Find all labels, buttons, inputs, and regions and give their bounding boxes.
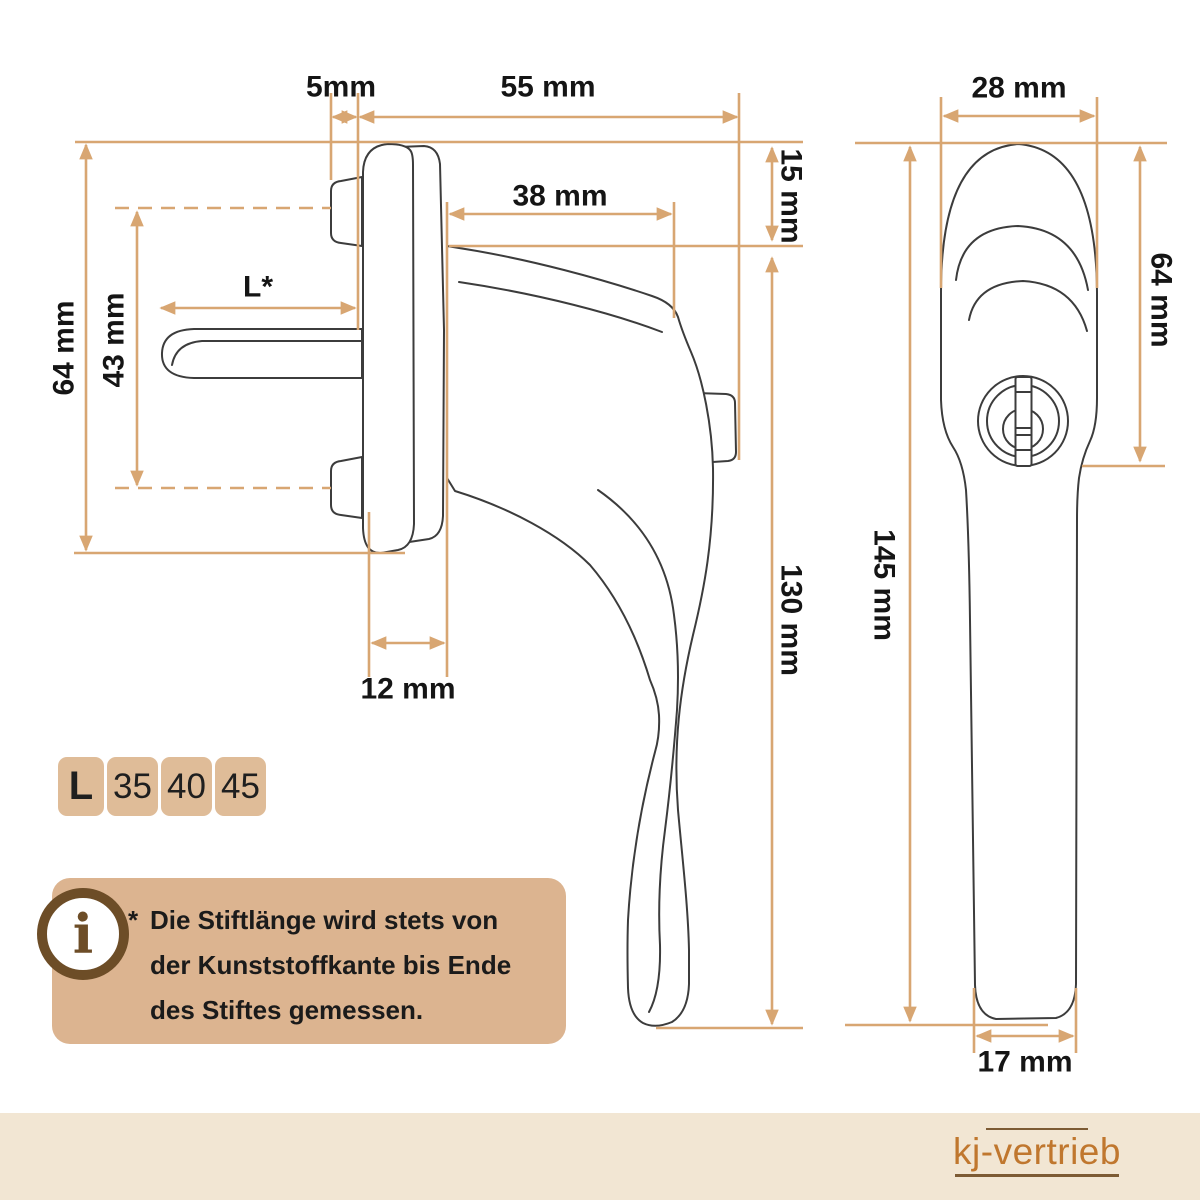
info-note-line: der Kunststoffkante bis Ende xyxy=(150,943,558,988)
pin-length-option: 35 xyxy=(107,757,158,816)
side-view-drawing xyxy=(941,144,1097,1019)
dim-label-130mm: 130 mm xyxy=(775,564,808,676)
screw-boss-bottom xyxy=(331,457,362,518)
brand-rule-bottom xyxy=(955,1174,1119,1177)
spindle-pin xyxy=(162,329,362,378)
info-icon: i xyxy=(37,888,129,980)
dim-label-5mm: 5mm xyxy=(306,71,376,104)
dim-label-43mm: 43 mm xyxy=(98,292,131,387)
dim-label-38mm: 38 mm xyxy=(512,180,607,213)
info-note-line: Die Stiftlänge wird stets von xyxy=(150,898,558,943)
brand-logo: kj-vertrieb xyxy=(952,1128,1122,1177)
dim-label-64mm-side: 64 mm xyxy=(1145,252,1178,347)
footnote-asterisk: * xyxy=(128,898,150,1033)
dim-label-L: L* xyxy=(243,271,273,304)
pin-length-option: 40 xyxy=(161,757,212,816)
dim-label-15mm: 15 mm xyxy=(775,148,808,243)
pin-length-table: L 35 40 45 xyxy=(58,757,266,816)
side-body xyxy=(941,144,1097,1019)
dim-label-55mm: 55 mm xyxy=(500,71,595,104)
pin-length-option: 45 xyxy=(215,757,266,816)
lock-key-slot xyxy=(1016,377,1032,466)
dim-label-12mm: 12 mm xyxy=(360,673,455,706)
info-note-text: * Die Stiftlänge wird stets von der Kuns… xyxy=(128,898,558,1033)
dim-label-28mm: 28 mm xyxy=(971,72,1066,105)
rosette-front-plate xyxy=(363,144,414,553)
info-note-lines: Die Stiftlänge wird stets von der Kunsts… xyxy=(150,898,558,1033)
pin-length-table-header: L xyxy=(58,757,104,816)
dim-label-17mm: 17 mm xyxy=(977,1046,1072,1079)
brand-name: kj-vertrieb xyxy=(952,1131,1122,1173)
brand-rule-top xyxy=(986,1128,1088,1130)
dim-label-145mm: 145 mm xyxy=(868,529,901,641)
dimension-diagram: 5mm 55 mm 38 mm 15 mm 130 mm 64 mm 43 mm… xyxy=(0,0,1200,1200)
dim-label-64mm-left: 64 mm xyxy=(48,300,81,395)
info-note-line: des Stiftes gemessen. xyxy=(150,988,558,1033)
